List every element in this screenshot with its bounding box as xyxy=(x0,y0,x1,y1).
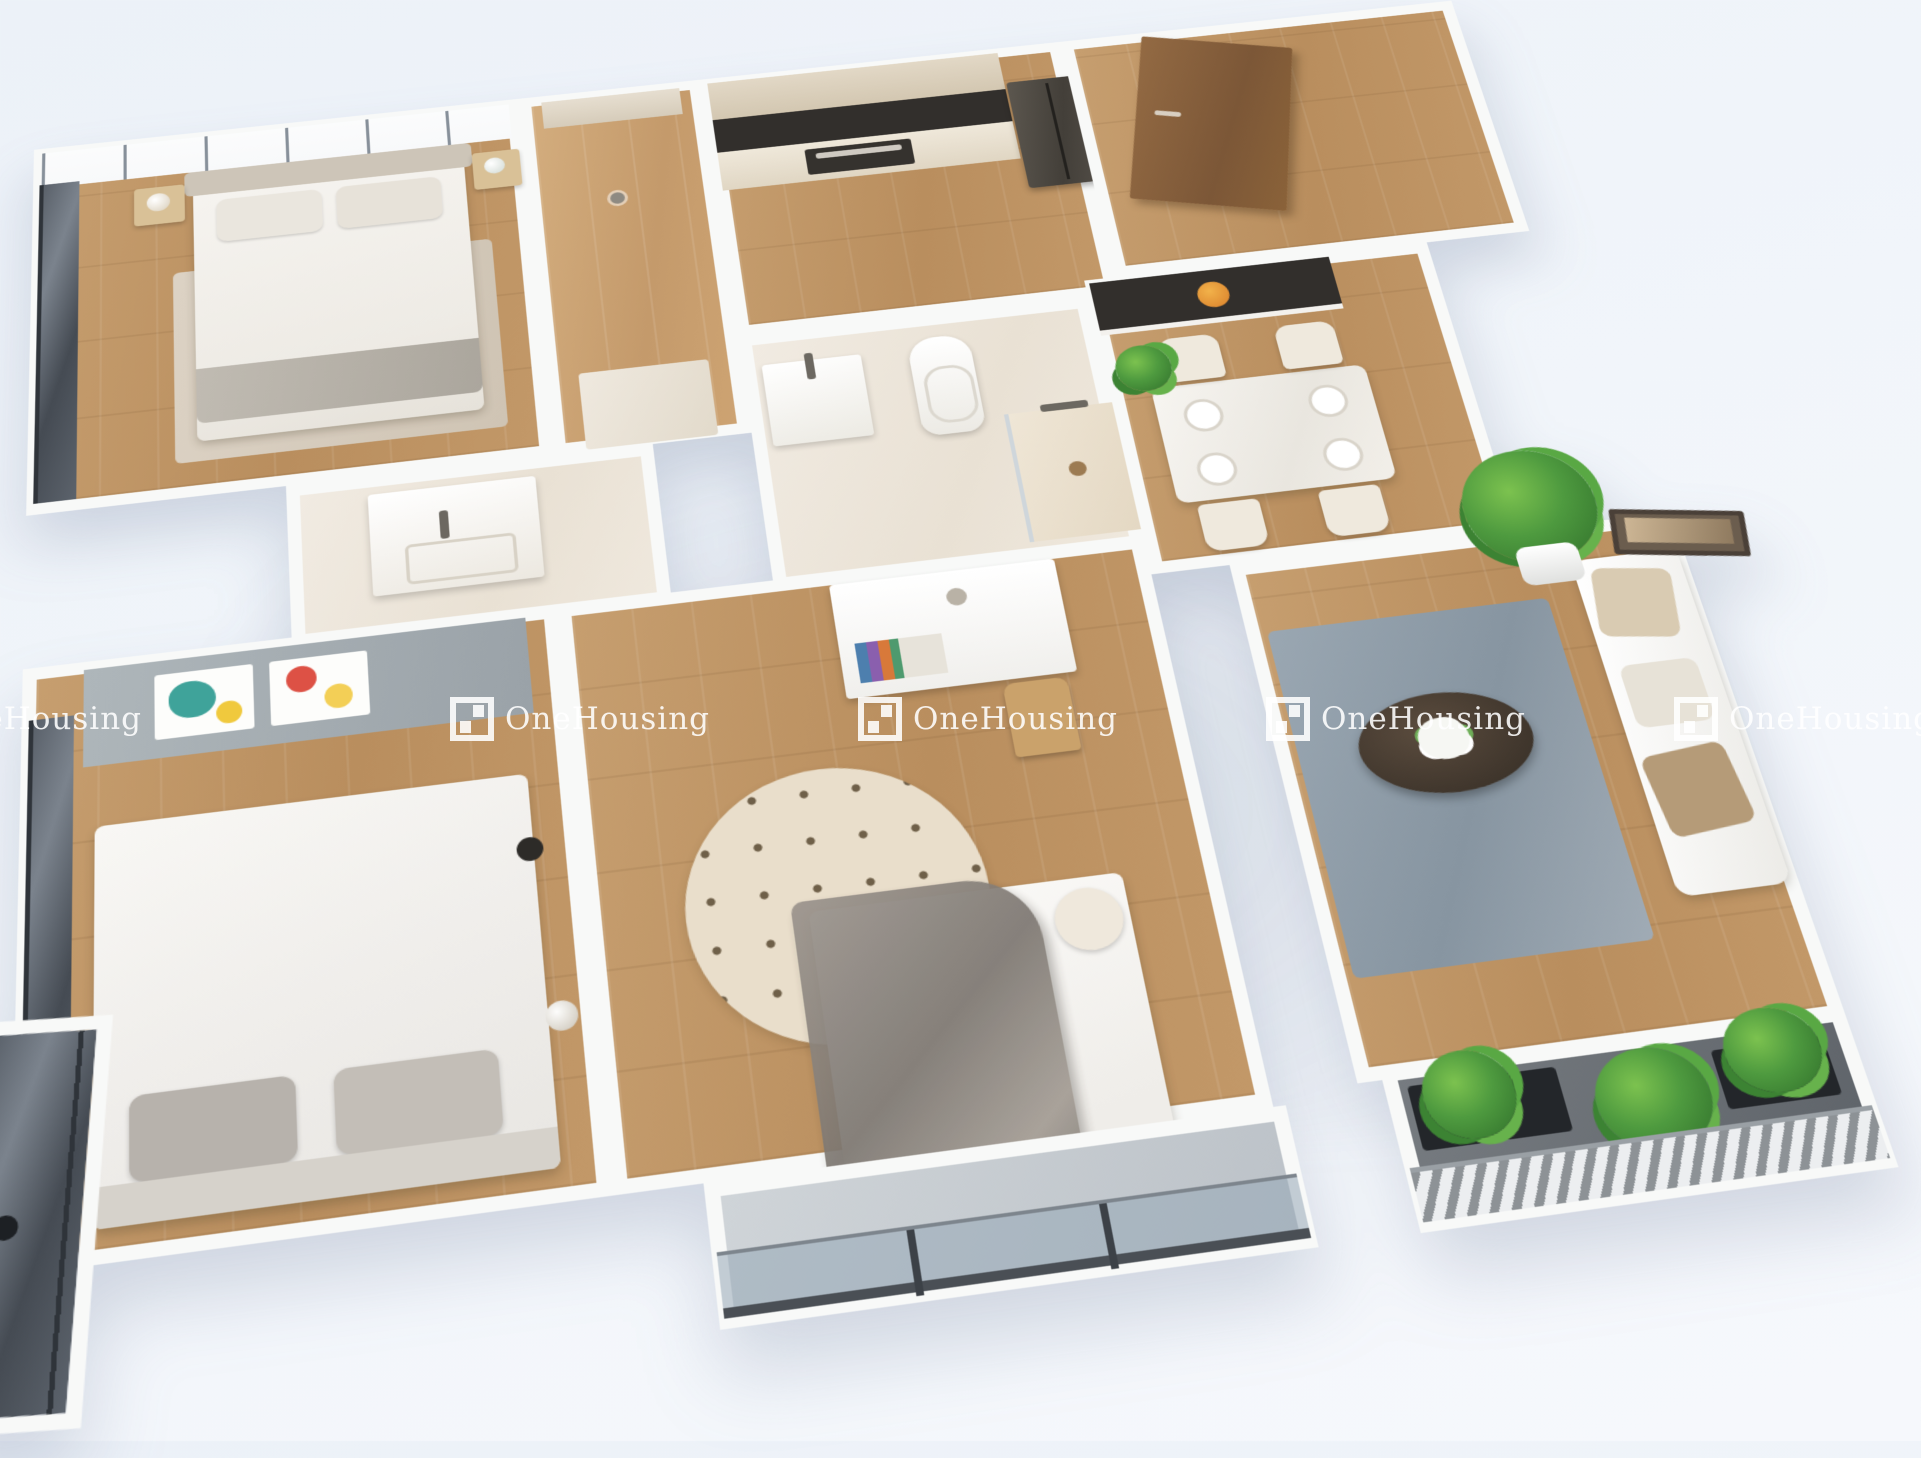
master-bed xyxy=(193,151,485,441)
second-bed xyxy=(92,774,561,1230)
cabinet-knob xyxy=(945,587,969,607)
place-setting xyxy=(1319,436,1367,473)
glass-railing xyxy=(717,1173,1312,1318)
hall-dresser xyxy=(578,359,718,450)
railing-post xyxy=(1099,1203,1119,1269)
art-print-yellow xyxy=(216,699,243,724)
hall-cabinet xyxy=(541,88,683,129)
large-plant-pot xyxy=(1513,541,1587,586)
oven-handle xyxy=(815,144,902,159)
place-setting xyxy=(1305,383,1352,419)
sofa-cushion xyxy=(1590,568,1682,636)
wall-artwork xyxy=(1608,509,1751,556)
master-bed-pillow-right xyxy=(336,176,443,229)
toilet-seat xyxy=(921,363,981,425)
flower-centerpiece xyxy=(1413,715,1475,762)
pendant-light xyxy=(610,192,626,205)
railing-post xyxy=(906,1229,924,1296)
sofa-cushion xyxy=(1618,657,1716,729)
dining-chair xyxy=(1197,498,1270,552)
refrigerator-door-split xyxy=(1045,83,1070,179)
entry-door xyxy=(1130,36,1293,211)
dining-table xyxy=(1151,364,1397,503)
place-setting xyxy=(1180,397,1227,433)
master-bed-throw-blanket xyxy=(196,338,483,424)
entry-hall xyxy=(1060,1,1529,277)
dining-area xyxy=(1084,242,1517,574)
kids-bookshelf xyxy=(829,559,1077,700)
place-setting xyxy=(1193,450,1240,487)
dining-chair xyxy=(1317,484,1391,538)
toilet xyxy=(906,333,987,436)
master-bed-pillow-left xyxy=(216,189,323,242)
bedside-lamp-left xyxy=(147,192,170,212)
master-bedroom xyxy=(26,99,553,516)
shower-fixture xyxy=(1040,400,1089,413)
bedroom2-wardrobe-top xyxy=(83,618,534,768)
kids-bed-pillow xyxy=(1049,884,1129,955)
second-bathroom-sink-basin xyxy=(405,532,519,585)
left-dark-balcony xyxy=(0,1015,113,1439)
kids-bedroom xyxy=(557,537,1274,1196)
art-print-frame xyxy=(154,664,254,740)
balcony-door-knob xyxy=(0,1215,19,1242)
floor-lamp xyxy=(544,999,579,1033)
oven xyxy=(804,138,915,175)
apartment-floorplan xyxy=(0,0,1921,1449)
nightstand-left xyxy=(134,184,185,226)
sofa-cushion xyxy=(1639,740,1758,839)
kitchen xyxy=(701,42,1120,337)
second-bathroom-vanity xyxy=(368,476,545,597)
dining-chair xyxy=(1273,320,1344,370)
master-bathroom-faucet xyxy=(804,353,817,380)
shower-drain-accessory xyxy=(1067,460,1088,477)
art-print-yellow xyxy=(324,682,353,709)
art-print-frame xyxy=(269,650,370,726)
book-spines xyxy=(854,633,948,683)
desk-chair xyxy=(1002,677,1081,758)
wall-artwork-canvas xyxy=(1624,518,1734,544)
fruit-bowl xyxy=(1195,280,1233,309)
bedside-vase-right xyxy=(483,157,505,175)
second-bathroom-faucet xyxy=(439,510,450,539)
art-print-teal xyxy=(169,678,217,720)
entry-door-handle xyxy=(1154,110,1181,117)
art-print-red xyxy=(286,664,317,694)
master-bathroom-sink xyxy=(762,354,875,446)
nightstand-right xyxy=(472,149,523,190)
master-bedroom-left-window xyxy=(33,181,79,504)
